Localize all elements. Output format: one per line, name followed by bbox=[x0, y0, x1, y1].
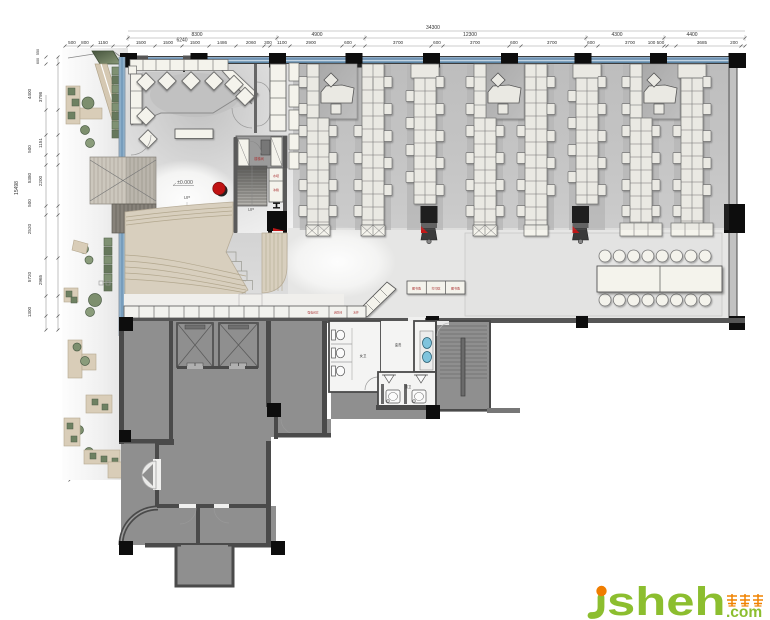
svg-text:550: 550 bbox=[36, 49, 40, 55]
svg-text:1150: 1150 bbox=[98, 40, 108, 45]
svg-text:水井: 水井 bbox=[353, 311, 359, 315]
svg-text:500: 500 bbox=[27, 145, 32, 153]
svg-text:4400: 4400 bbox=[27, 88, 32, 99]
svg-text:1151: 1151 bbox=[38, 138, 43, 148]
svg-text:3798: 3798 bbox=[38, 91, 43, 102]
svg-text:3700: 3700 bbox=[625, 40, 636, 45]
svg-text:6240: 6240 bbox=[176, 38, 187, 44]
svg-text:±0.000: ±0.000 bbox=[177, 180, 193, 186]
svg-text:5720: 5720 bbox=[27, 271, 32, 282]
svg-text:1300: 1300 bbox=[27, 306, 32, 317]
svg-text:200: 200 bbox=[730, 40, 738, 45]
svg-text:2965: 2965 bbox=[38, 274, 43, 285]
svg-text:1486: 1486 bbox=[217, 40, 228, 45]
svg-text:1500: 1500 bbox=[163, 40, 174, 45]
svg-text:4300: 4300 bbox=[611, 32, 622, 38]
svg-text:600: 600 bbox=[344, 40, 352, 45]
svg-text:800: 800 bbox=[81, 40, 89, 45]
svg-text:UP: UP bbox=[184, 195, 191, 201]
svg-text:3685: 3685 bbox=[697, 40, 708, 45]
svg-text:3700: 3700 bbox=[393, 40, 404, 45]
svg-text:100 500: 100 500 bbox=[648, 40, 665, 45]
svg-text:打印区: 打印区 bbox=[431, 286, 440, 291]
svg-text:3700: 3700 bbox=[470, 40, 481, 45]
svg-text:2900: 2900 bbox=[306, 40, 317, 45]
svg-text:600: 600 bbox=[510, 40, 518, 45]
svg-text:图书角: 图书角 bbox=[451, 286, 460, 291]
svg-text:500: 500 bbox=[68, 40, 76, 45]
svg-text:sheh: sheh bbox=[607, 579, 726, 620]
svg-text:强电间房: 强电间房 bbox=[307, 311, 318, 315]
svg-text:5380: 5380 bbox=[27, 172, 32, 183]
svg-text:300: 300 bbox=[264, 40, 272, 45]
svg-text:图书角: 图书角 bbox=[412, 286, 421, 291]
svg-text:UP: UP bbox=[248, 207, 254, 212]
svg-text:女卫: 女卫 bbox=[360, 353, 367, 358]
svg-text:600: 600 bbox=[433, 40, 441, 45]
svg-text:600: 600 bbox=[36, 58, 40, 64]
svg-text:8300: 8300 bbox=[191, 32, 202, 38]
svg-text:3700: 3700 bbox=[547, 40, 558, 45]
svg-text:1500: 1500 bbox=[190, 40, 201, 45]
svg-text:消防间: 消防间 bbox=[334, 311, 343, 315]
svg-text:男卫: 男卫 bbox=[405, 384, 412, 389]
svg-text:12300: 12300 bbox=[463, 32, 477, 38]
svg-text:盃洗: 盃洗 bbox=[395, 342, 402, 347]
svg-text:4400: 4400 bbox=[686, 32, 697, 38]
svg-text:冰箱: 冰箱 bbox=[273, 187, 279, 192]
svg-text:水吧: 水吧 bbox=[273, 173, 279, 178]
svg-text:15498: 15498 bbox=[14, 181, 20, 195]
svg-text:2520: 2520 bbox=[27, 223, 32, 234]
svg-text:34300: 34300 bbox=[426, 25, 440, 31]
svg-text:1100: 1100 bbox=[277, 40, 287, 45]
svg-text:.com: .com bbox=[726, 604, 762, 620]
svg-text:600: 600 bbox=[587, 40, 595, 45]
svg-text:2200: 2200 bbox=[38, 175, 43, 186]
svg-text:4900: 4900 bbox=[311, 32, 322, 38]
svg-text:2060: 2060 bbox=[246, 40, 257, 45]
svg-text:500: 500 bbox=[27, 199, 32, 207]
svg-text:楼梯间: 楼梯间 bbox=[254, 156, 264, 161]
svg-text:1500: 1500 bbox=[136, 40, 147, 45]
